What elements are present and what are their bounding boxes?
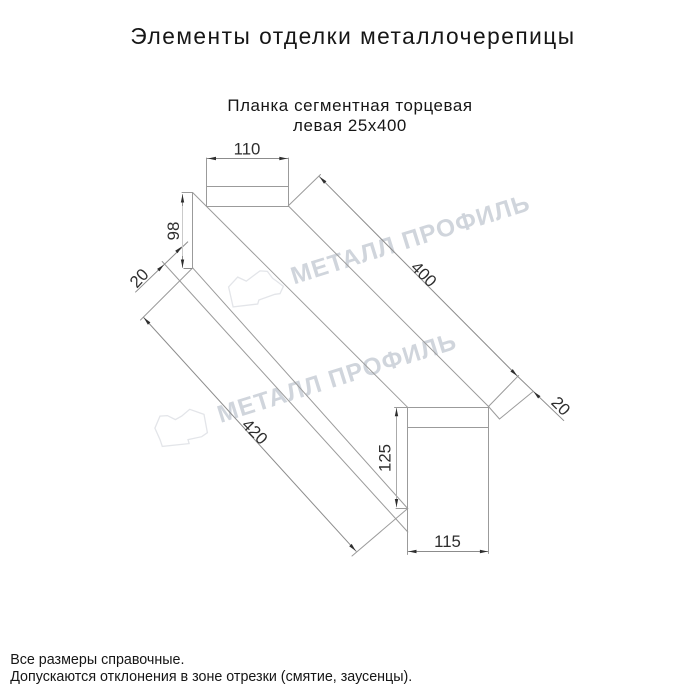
svg-text:125: 125 [376, 444, 395, 472]
svg-text:МЕТАЛЛ ПРОФИЛЬ: МЕТАЛЛ ПРОФИЛЬ [288, 189, 534, 290]
svg-text:20: 20 [126, 265, 153, 292]
svg-text:98: 98 [164, 222, 183, 241]
svg-text:МЕТАЛЛ ПРОФИЛЬ: МЕТАЛЛ ПРОФИЛЬ [214, 328, 460, 429]
svg-text:20: 20 [547, 393, 574, 420]
svg-text:400: 400 [407, 258, 440, 291]
svg-text:115: 115 [434, 532, 461, 551]
svg-text:110: 110 [234, 140, 261, 159]
